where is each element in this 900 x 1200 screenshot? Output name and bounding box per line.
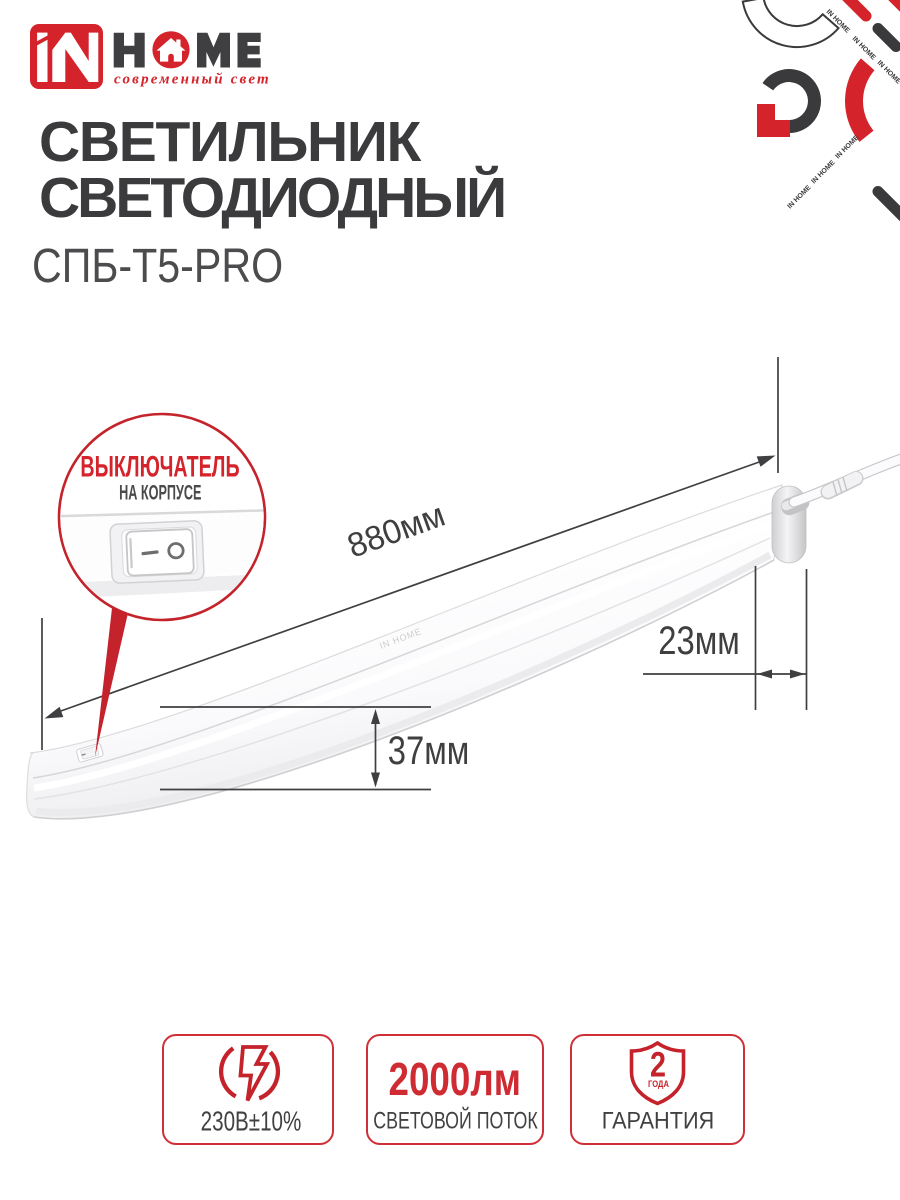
svg-text:ВЫКЛЮЧАТЕЛЬ: ВЫКЛЮЧАТЕЛЬ [80, 451, 239, 484]
svg-text:НА КОРПУСЕ: НА КОРПУСЕ [119, 480, 201, 504]
svg-text:37мм: 37мм [388, 728, 470, 773]
svg-text:СВЕТОВОЙ ПОТОК: СВЕТОВОЙ ПОТОК [373, 1105, 538, 1134]
svg-text:2000лм: 2000лм [388, 1053, 520, 1105]
svg-text:880мм: 880мм [343, 496, 450, 565]
svg-text:23мм: 23мм [658, 618, 740, 663]
svg-text:ГАРАНТИЯ: ГАРАНТИЯ [601, 1106, 713, 1133]
svg-text:230В±10%: 230В±10% [201, 1106, 302, 1137]
svg-text:ГОДА: ГОДА [648, 1078, 669, 1089]
